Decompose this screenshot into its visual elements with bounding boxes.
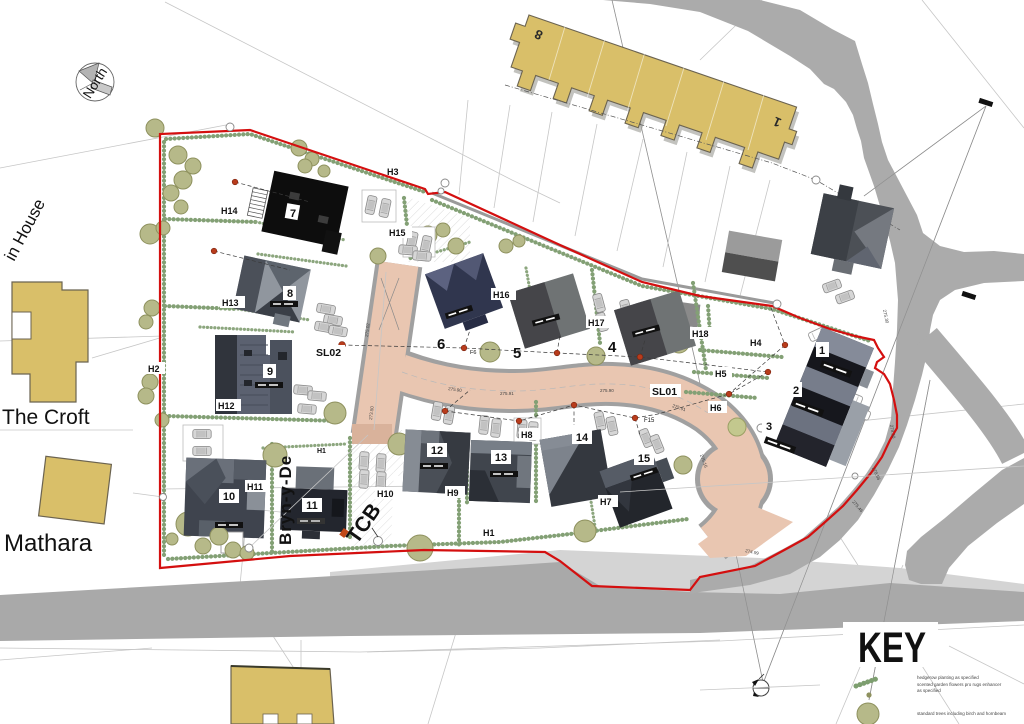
svg-text:standard trees including birc: standard trees including birch and hornb… — [917, 711, 1006, 716]
svg-text:KEY: KEY — [858, 624, 926, 672]
svg-text:12: 12 — [431, 445, 443, 457]
svg-text:F6: F6 — [470, 350, 476, 356]
svg-text:H17: H17 — [588, 318, 605, 328]
svg-text:Bryn-y-De: Bryn-y-De — [276, 455, 295, 545]
svg-text:2: 2 — [793, 385, 799, 397]
svg-text:13: 13 — [495, 452, 507, 464]
svg-text:hedgerow planting as specified: hedgerow planting as specified — [917, 675, 979, 680]
svg-text:H3: H3 — [387, 167, 399, 177]
svg-text:7: 7 — [290, 208, 296, 220]
svg-text:H1: H1 — [483, 528, 495, 538]
svg-text:H15: H15 — [389, 228, 406, 238]
svg-text:11: 11 — [306, 500, 318, 512]
svg-text:H7: H7 — [600, 497, 612, 507]
svg-text:H18: H18 — [692, 329, 709, 339]
svg-text:SL02: SL02 — [316, 347, 341, 359]
svg-text:1: 1 — [819, 345, 825, 357]
svg-text:H11: H11 — [247, 482, 263, 492]
svg-text:H13: H13 — [222, 298, 239, 308]
svg-text:4: 4 — [608, 339, 617, 356]
svg-text:as specified: as specified — [917, 688, 941, 693]
svg-text:5: 5 — [513, 345, 521, 362]
svg-text:H9: H9 — [447, 488, 459, 498]
svg-text:3: 3 — [766, 421, 772, 433]
svg-text:6: 6 — [437, 336, 445, 353]
svg-text:H14: H14 — [221, 206, 238, 216]
svg-text:Mathara: Mathara — [4, 530, 93, 557]
svg-text:275.90: 275.90 — [600, 388, 614, 393]
svg-text:H2: H2 — [148, 364, 160, 374]
svg-text:H10: H10 — [377, 489, 394, 499]
svg-text:F15: F15 — [644, 418, 655, 424]
svg-text:275.91: 275.91 — [500, 391, 514, 396]
svg-text:10: 10 — [223, 491, 235, 503]
svg-text:H8: H8 — [521, 430, 533, 440]
svg-text:H1: H1 — [317, 448, 326, 455]
svg-text:9: 9 — [267, 366, 273, 378]
svg-text:H12: H12 — [218, 401, 235, 411]
svg-text:H6: H6 — [710, 403, 722, 413]
svg-text:H16: H16 — [493, 290, 510, 300]
svg-text:scented garden flowers pro ru: scented garden flowers pro rugs enhancer — [917, 682, 1002, 687]
svg-text:8: 8 — [287, 288, 293, 300]
svg-text:15: 15 — [638, 453, 650, 465]
svg-text:SL01: SL01 — [652, 386, 677, 398]
svg-text:H5: H5 — [715, 369, 727, 379]
svg-text:14: 14 — [576, 432, 589, 444]
svg-text:H4: H4 — [750, 338, 762, 348]
svg-text:The Croft: The Croft — [2, 406, 90, 429]
